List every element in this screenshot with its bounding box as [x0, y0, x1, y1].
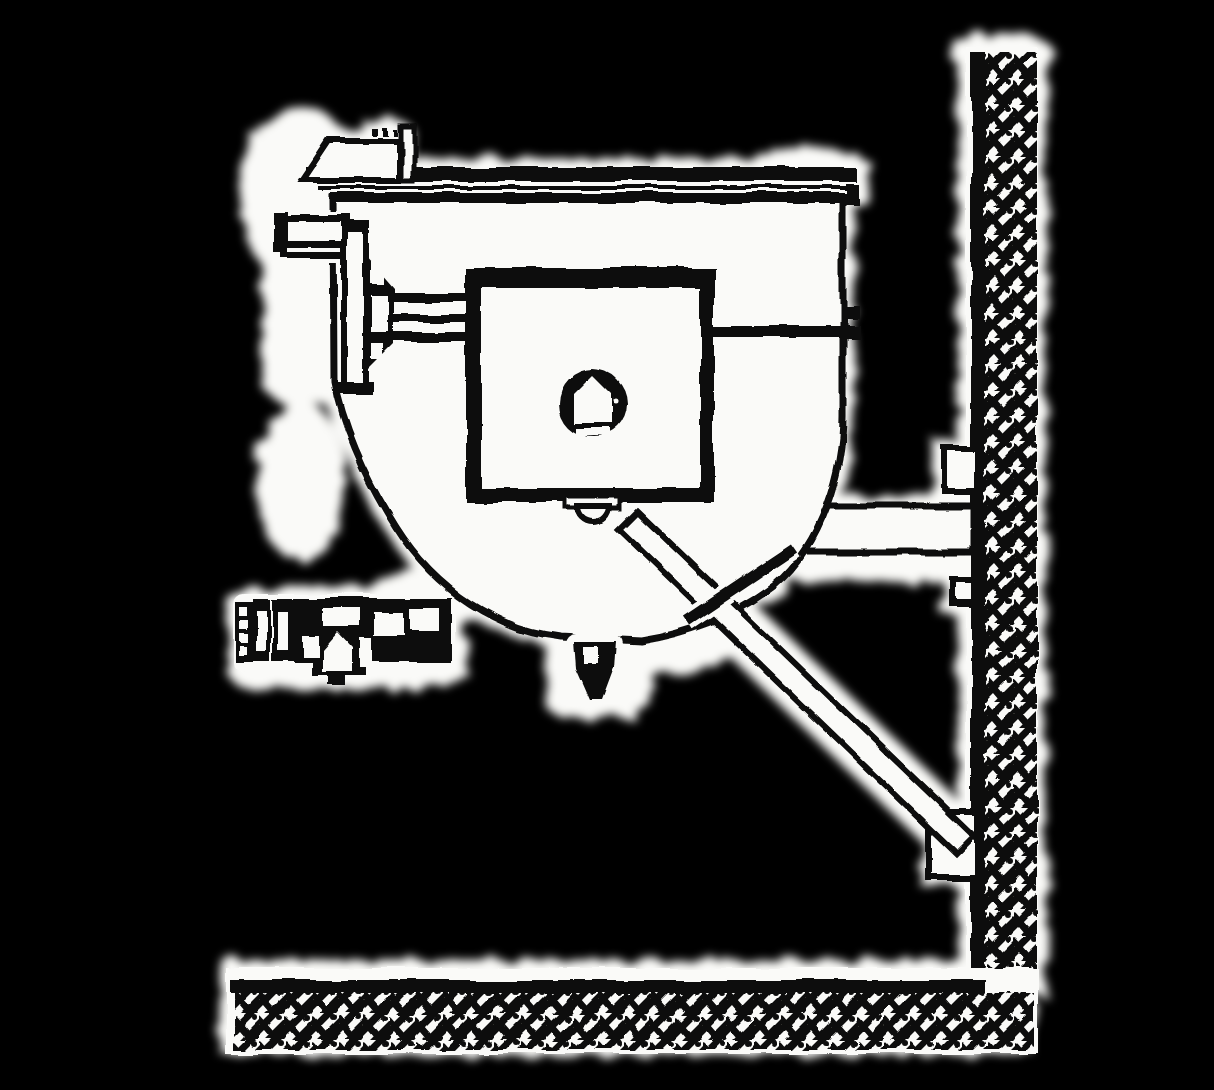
hub-slot: [371, 262, 384, 284]
kettle-elevation-drawing: [0, 0, 1214, 1090]
inlet-pipe-bore: [286, 222, 342, 241]
diagram-page: [0, 0, 1214, 1090]
floor-hatch: [234, 993, 1034, 1050]
pivot-plate-foot: [335, 382, 373, 395]
pipe-end-cap: [274, 211, 288, 253]
pivot-plate-cap: [340, 221, 370, 232]
console-knob: [559, 369, 627, 437]
lip-edge-tab: [401, 126, 414, 180]
rim-line: [318, 185, 852, 189]
lip-speck: [394, 129, 398, 136]
upper-wall-lug: [944, 448, 978, 492]
floor-section: [226, 968, 1038, 1054]
cradle-notch: [578, 506, 610, 522]
pipe-under-line: [281, 252, 349, 258]
wall-hatch: [985, 52, 1037, 993]
pivot-plate: [344, 226, 366, 392]
shell-top-line: [330, 192, 848, 203]
tilt-shaft: [388, 293, 472, 341]
drain-bore: [584, 646, 598, 664]
floor-line: [230, 980, 986, 993]
mid-wall-lug: [950, 576, 976, 608]
valve-stem-tip: [328, 676, 346, 686]
hub-slot: [371, 344, 383, 360]
rim-corner: [846, 183, 859, 204]
knob-slot: [577, 428, 609, 436]
lip-speck: [383, 127, 388, 136]
knob-dot: [613, 399, 618, 404]
drain-fitting: [566, 634, 622, 706]
lip-speck: [372, 128, 378, 136]
hub-slot: [371, 296, 389, 332]
